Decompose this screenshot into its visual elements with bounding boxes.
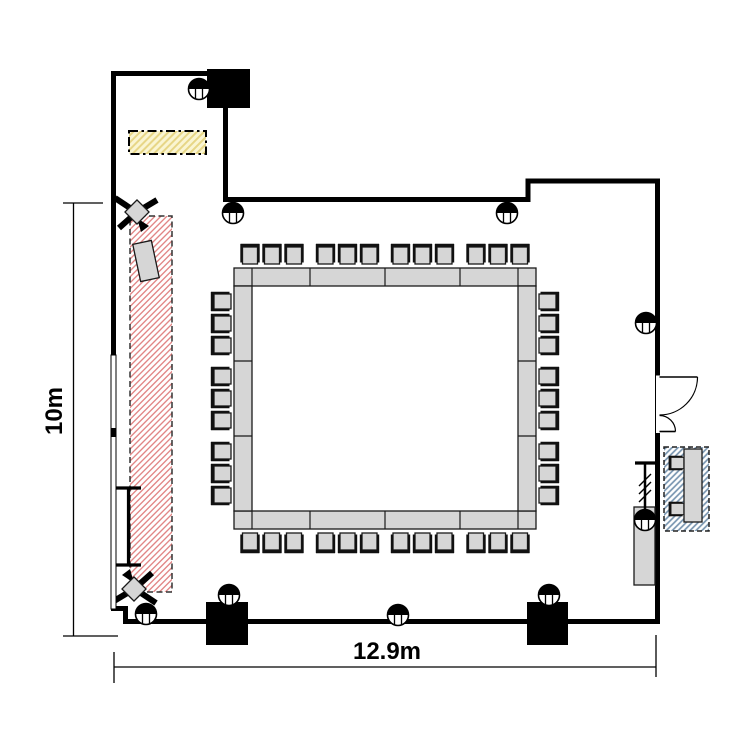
chair-seat (362, 533, 377, 550)
chair (211, 314, 231, 333)
chair (285, 244, 304, 264)
chair-seat (539, 338, 556, 353)
chair (539, 292, 559, 311)
floor-box (189, 79, 210, 100)
chair-seat (287, 247, 302, 264)
chair (285, 533, 304, 553)
floor-box-top (189, 79, 210, 90)
wall-junction-marker (111, 428, 116, 437)
chair-seat (214, 488, 231, 503)
floor-box (539, 585, 560, 606)
chair-seat (437, 247, 452, 264)
chair-seat (539, 316, 556, 331)
chair (316, 244, 335, 264)
av-chair (669, 456, 684, 470)
chair (539, 486, 559, 505)
chair (211, 442, 231, 461)
table-chairs (211, 244, 559, 553)
chair-seat (214, 466, 231, 481)
chair-seat (318, 247, 333, 264)
storage-area (129, 131, 206, 154)
chair-seat (214, 338, 231, 353)
floor-box (636, 313, 657, 334)
chair-seat (491, 533, 506, 550)
chair (467, 533, 486, 553)
meeting-room-floor-plan: 12.9m 10m (0, 0, 750, 750)
chair (435, 533, 454, 553)
chair (211, 486, 231, 505)
floor-box (219, 585, 240, 606)
chair (211, 389, 231, 408)
chair (539, 411, 559, 430)
chair-seat (539, 413, 556, 428)
chair-seat (539, 391, 556, 406)
chair (360, 533, 379, 553)
pillar (206, 602, 248, 645)
pillar (207, 69, 250, 108)
chair (539, 314, 559, 333)
chair (263, 244, 282, 264)
chair (360, 244, 379, 264)
door-opening (653, 376, 662, 434)
chair-seat (539, 466, 556, 481)
chair (539, 336, 559, 355)
chair (391, 533, 410, 553)
chair (241, 533, 260, 553)
chair (511, 533, 530, 553)
table-left-band (234, 286, 252, 511)
chair (211, 336, 231, 355)
chair-seat (265, 247, 280, 264)
av-desk (684, 449, 702, 522)
chair-seat (393, 247, 408, 264)
chair-seat (214, 369, 231, 384)
chair-seat (437, 533, 452, 550)
chair-seat (214, 391, 231, 406)
chair-seat (539, 294, 556, 309)
chair (316, 533, 335, 553)
plan-layers (63, 69, 709, 683)
chair (391, 244, 410, 264)
chair (211, 292, 231, 311)
floor-box (497, 203, 518, 224)
floor-box-top (388, 605, 409, 616)
chair-seat (513, 247, 528, 264)
floor-box-top (136, 604, 157, 615)
av-chair (669, 502, 684, 516)
chair-seat (415, 247, 430, 264)
chair-seat (243, 247, 258, 264)
chair (413, 244, 432, 264)
height-dimension-label: 10m (42, 344, 68, 478)
floor-box (223, 203, 244, 224)
floor-box-top (219, 585, 240, 596)
floor-box (136, 604, 157, 625)
chair-seat (265, 533, 280, 550)
chair (211, 464, 231, 483)
chair (338, 533, 357, 553)
chair-seat (214, 413, 231, 428)
chair-seat (340, 247, 355, 264)
chair-seat (491, 247, 506, 264)
chair (467, 244, 486, 264)
chair (338, 244, 357, 264)
chair-seat (214, 294, 231, 309)
chair (241, 244, 260, 264)
chair-seat (214, 316, 231, 331)
chair (489, 533, 508, 553)
floor-box (388, 605, 409, 626)
chair-seat (415, 533, 430, 550)
chair (211, 411, 231, 430)
door-swing-arc (660, 377, 698, 415)
chair (539, 464, 559, 483)
chair (511, 244, 530, 264)
floor-box-top (636, 313, 657, 324)
chair (539, 367, 559, 386)
chair-seat (362, 247, 377, 264)
chair-seat (469, 247, 484, 264)
pillar (527, 602, 568, 645)
table-right-band (518, 286, 536, 511)
chair-seat (287, 533, 302, 550)
chair-seat (671, 503, 684, 514)
chair (413, 533, 432, 553)
floor-box-top (497, 203, 518, 213)
chair-seat (539, 488, 556, 503)
chair-seat (393, 533, 408, 550)
chair-seat (539, 444, 556, 459)
conference-table (234, 268, 536, 529)
chair-seat (214, 444, 231, 459)
floor-box (635, 510, 656, 531)
chair-seat (469, 533, 484, 550)
chair (263, 533, 282, 553)
chair-seat (513, 533, 528, 550)
chair-seat (243, 533, 258, 550)
chair (539, 389, 559, 408)
chair-seat (671, 457, 684, 468)
chair (539, 442, 559, 461)
wall (226, 103, 658, 377)
chair (211, 367, 231, 386)
floor-box-top (223, 203, 244, 213)
chair (435, 244, 454, 264)
chair-seat (539, 369, 556, 384)
chair-seat (340, 533, 355, 550)
chair (489, 244, 508, 264)
window-wall (111, 355, 116, 609)
width-dimension-label: 12.9m (327, 639, 447, 665)
chair-seat (318, 533, 333, 550)
floor-box-top (539, 585, 560, 596)
